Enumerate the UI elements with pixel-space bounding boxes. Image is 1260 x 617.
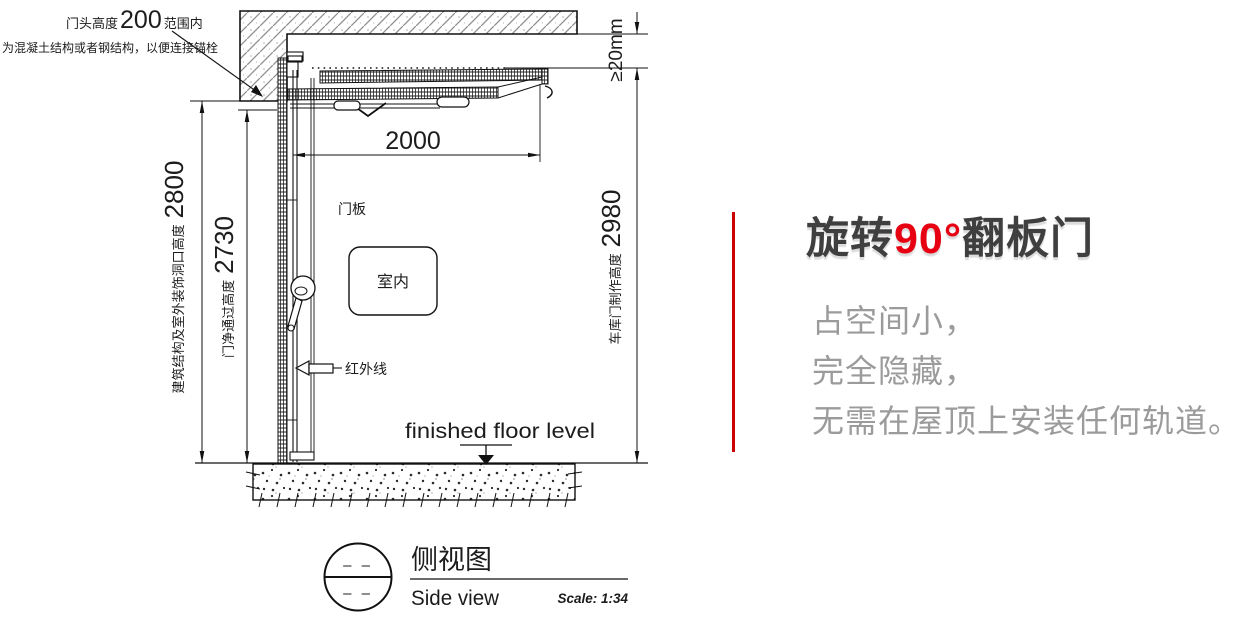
head-note-line2: 为混凝土结构或者钢结构，以便连接锚栓 xyxy=(2,40,218,55)
head-note-suffix: 范围内 xyxy=(164,16,203,31)
side-view-drawing: 红外线 门头高度200范围内 为混凝土结构或者钢结构，以便连接锚栓 门板 室内 xyxy=(0,0,720,617)
track-base xyxy=(290,452,314,460)
head-note: 门头高度200范围内 为混凝土结构或者钢结构，以便连接锚栓 xyxy=(2,6,263,97)
dim-2000-value: 2000 xyxy=(385,127,441,155)
red-divider xyxy=(732,212,735,452)
dim-top-gap-value: ≥20mm xyxy=(606,18,627,81)
product-title-part3: 翻板门 xyxy=(962,215,1094,263)
infrared-label: 红外线 xyxy=(345,361,387,377)
indoor-label: 室内 xyxy=(377,273,409,291)
roller-right xyxy=(437,97,469,107)
product-title: 旋转90°翻板门 xyxy=(806,204,1094,266)
page: 红外线 门头高度200范围内 为混凝土结构或者钢结构，以便连接锚栓 门板 室内 xyxy=(0,0,1260,617)
indoor-box: 室内 xyxy=(349,247,437,315)
head-note-number: 200 xyxy=(120,6,162,34)
dim-2730-label: 门净通过高度 xyxy=(221,280,236,358)
feature-list: 占空间小， 完全隐藏， 无需在屋顶上安装任何轨道。 xyxy=(812,296,1241,446)
door-track xyxy=(278,58,315,472)
infrared-sensor: 红外线 xyxy=(296,361,387,377)
open-door-panel xyxy=(288,68,648,116)
feature-line-1: 占空间小， xyxy=(812,296,1241,346)
dim-2800-label: 建筑结构及室外装饰洞口高度 xyxy=(171,224,186,393)
view-title-en: Side view xyxy=(411,587,500,610)
dim-2980-label: 车库门制作高度 xyxy=(608,253,623,344)
panel-label: 门板 xyxy=(338,201,366,217)
svg-text:门净通过高度2730: 门净通过高度2730 xyxy=(209,216,239,358)
pivot-arm xyxy=(288,298,302,329)
scale-label: Scale: 1:34 xyxy=(557,591,628,606)
dim-2730-value: 2730 xyxy=(209,216,239,274)
feature-line-2: 完全隐藏， xyxy=(812,346,1241,396)
feature-line-3: 无需在屋顶上安装任何轨道。 xyxy=(812,396,1241,446)
svg-text:建筑结构及室外装饰洞口高度2800: 建筑结构及室外装饰洞口高度2800 xyxy=(159,161,189,394)
dim-top-gap: ≥20mm xyxy=(606,12,639,82)
roller-left xyxy=(334,101,360,110)
dim-2980: 车库门制作高度2980 xyxy=(596,68,639,463)
dim-2730: 门净通过高度2730 xyxy=(209,110,277,463)
title-block: – – – – 侧视图 Side view Scale: 1:34 xyxy=(325,544,629,611)
dim-2980-value: 2980 xyxy=(596,190,626,248)
floor-slab xyxy=(195,463,648,507)
floor-level-note: finished floor level xyxy=(405,420,595,465)
header-bracket xyxy=(287,52,303,77)
dim-2800-value: 2800 xyxy=(159,161,189,219)
section-symbol-dash-top: – – xyxy=(343,557,373,574)
svg-text:门头高度200范围内: 门头高度200范围内 xyxy=(66,6,203,34)
section-symbol-dash-bottom: – – xyxy=(343,585,373,602)
hinge-hook xyxy=(545,86,552,98)
product-title-part1: 旋转 xyxy=(806,215,894,263)
floor-level-label: finished floor level xyxy=(405,420,595,443)
head-note-prefix: 门头高度 xyxy=(66,16,118,31)
view-title-cn: 侧视图 xyxy=(411,545,492,575)
product-title-accent: 90° xyxy=(894,215,962,263)
svg-text:车库门制作高度2980: 车库门制作高度2980 xyxy=(596,190,626,345)
